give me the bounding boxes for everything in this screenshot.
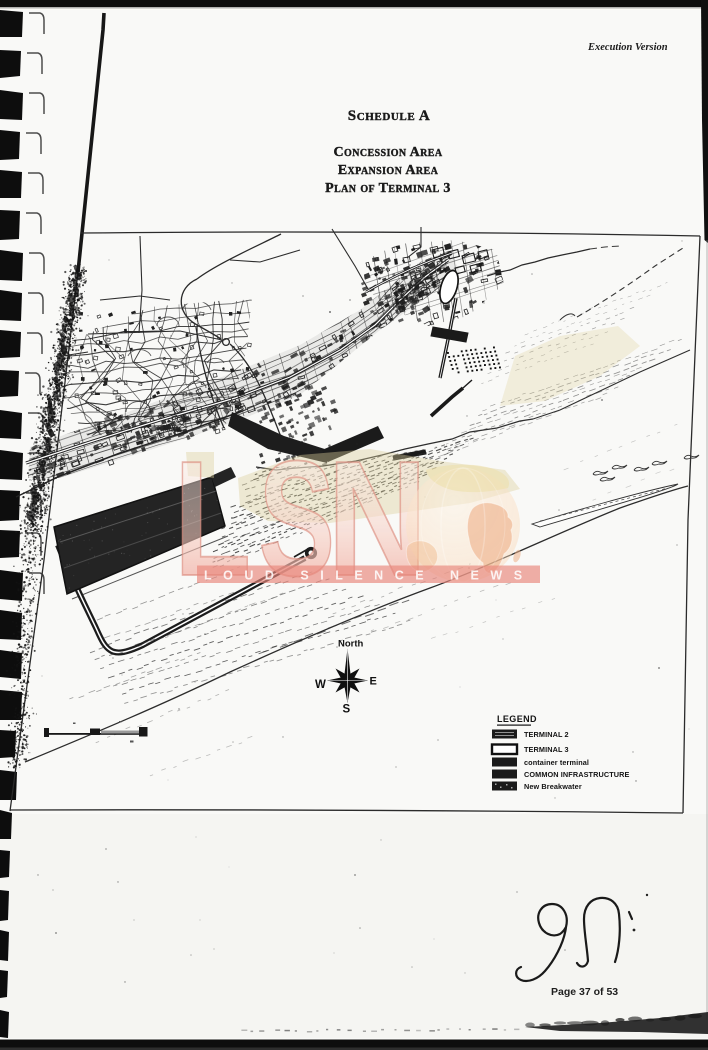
- svg-text:E: E: [370, 676, 377, 688]
- svg-text:North: North: [338, 639, 364, 650]
- svg-text:W: W: [315, 679, 326, 691]
- svg-text:TERMINAL 3: TERMINAL 3: [524, 745, 569, 754]
- svg-text:TERMINAL 2: TERMINAL 2: [524, 730, 569, 739]
- svg-text:LEGEND: LEGEND: [497, 714, 537, 724]
- svg-text:container terminal: container terminal: [524, 758, 589, 767]
- svg-text:S: S: [343, 704, 351, 716]
